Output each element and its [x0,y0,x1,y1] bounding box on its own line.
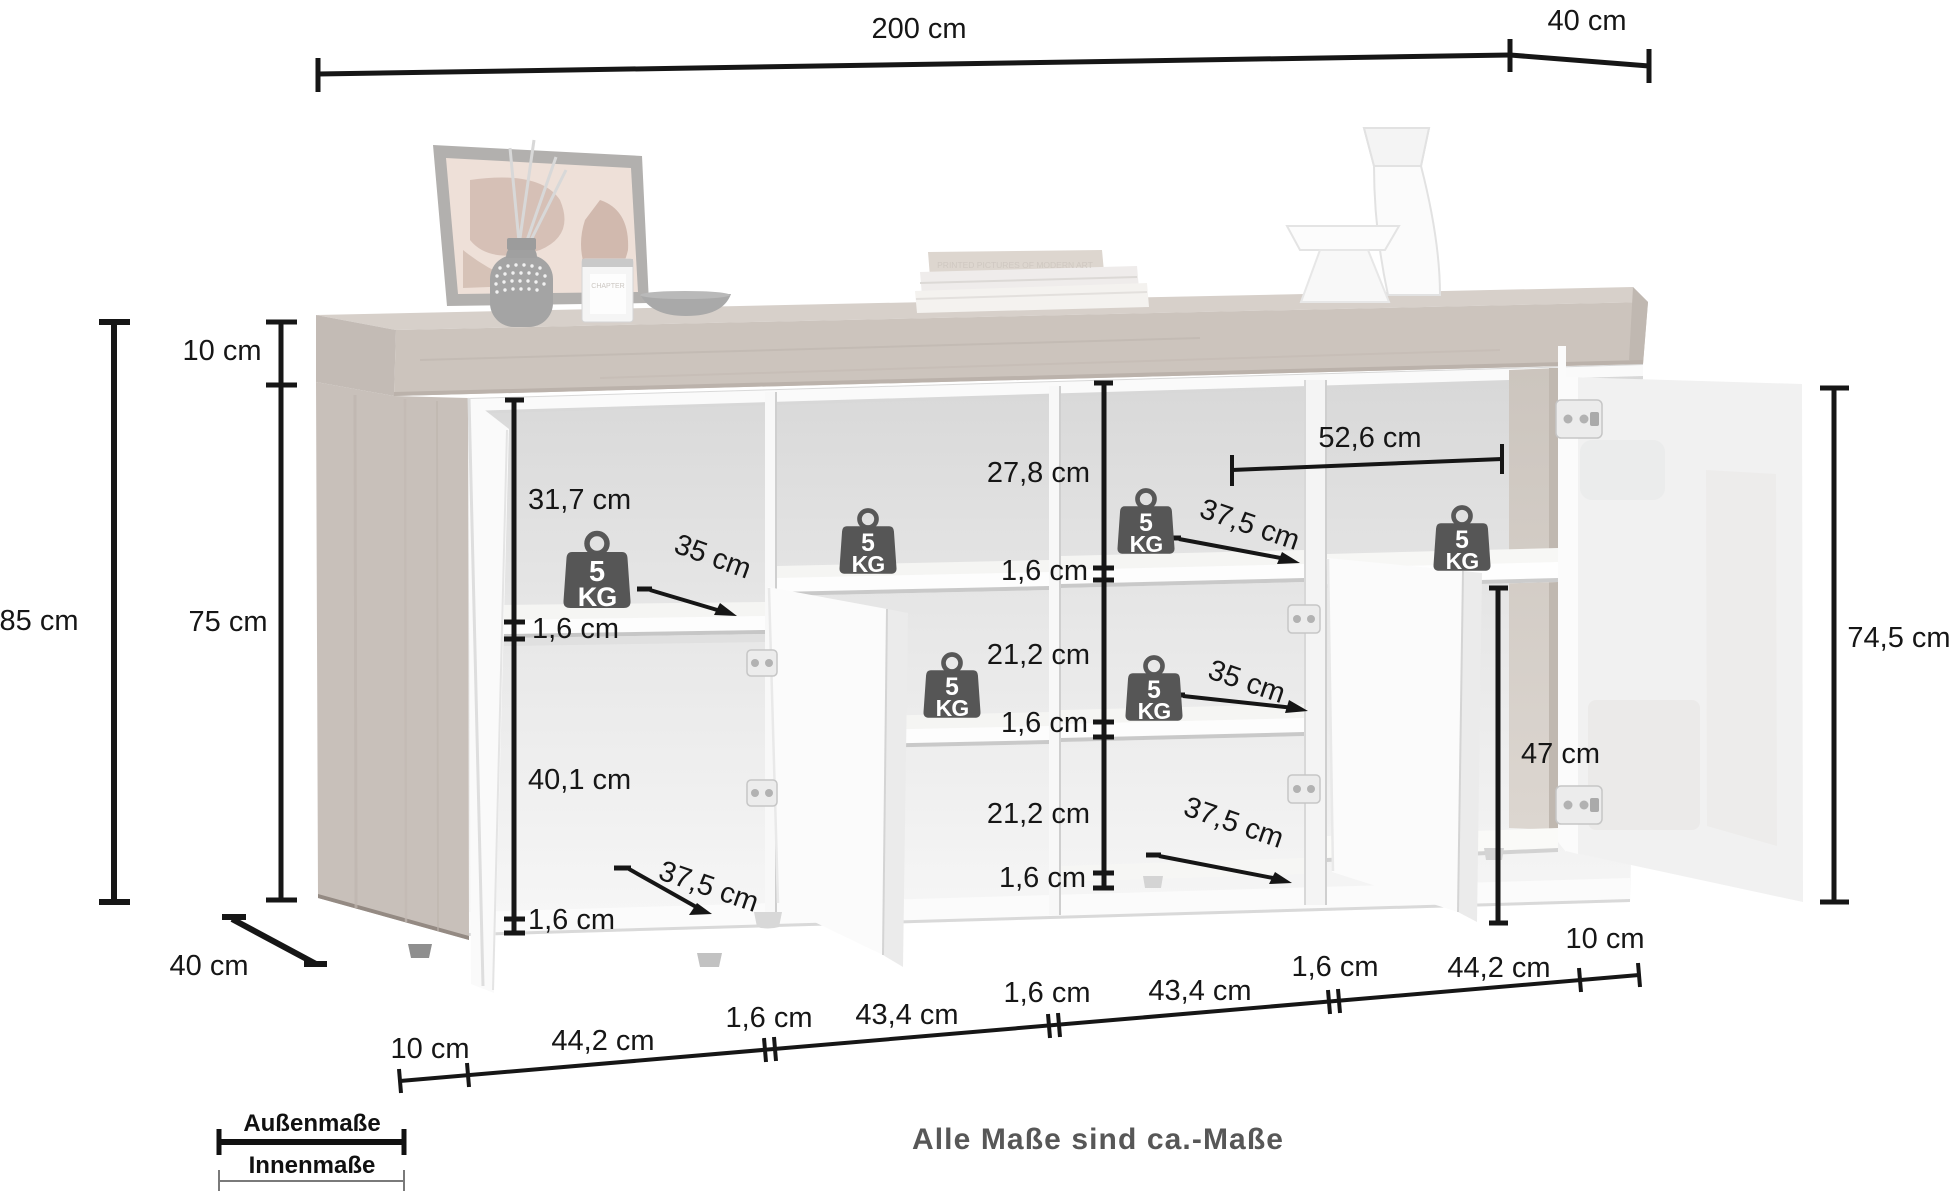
svg-text:Außenmaße: Außenmaße [243,1110,380,1137]
svg-text:Innenmaße: Innenmaße [249,1152,376,1179]
svg-text:PRINTED PICTURES OF MODERN ART: PRINTED PICTURES OF MODERN ART [937,260,1093,270]
svg-text:27,8 cm: 27,8 cm [987,457,1090,489]
svg-text:10 cm: 10 cm [1566,923,1645,955]
svg-text:85 cm: 85 cm [0,605,78,637]
svg-text:44,2 cm: 44,2 cm [1447,952,1550,984]
svg-text:1,6 cm: 1,6 cm [1001,555,1088,587]
svg-text:40,1 cm: 40,1 cm [528,764,631,796]
svg-text:47 cm: 47 cm [1521,738,1600,770]
svg-text:1,6 cm: 1,6 cm [999,862,1086,894]
svg-text:1,6 cm: 1,6 cm [1003,977,1090,1009]
svg-text:1,6 cm: 1,6 cm [1291,951,1378,983]
svg-text:10 cm: 10 cm [183,335,262,367]
svg-text:44,2 cm: 44,2 cm [551,1025,654,1057]
svg-text:31,7 cm: 31,7 cm [528,484,631,516]
svg-text:1,6 cm: 1,6 cm [528,904,615,936]
svg-text:1,6 cm: 1,6 cm [725,1002,812,1034]
svg-text:1,6 cm: 1,6 cm [532,613,619,645]
svg-text:21,2 cm: 21,2 cm [987,639,1090,671]
svg-text:10 cm: 10 cm [391,1033,470,1065]
svg-text:74,5 cm: 74,5 cm [1847,622,1950,654]
svg-text:21,2 cm: 21,2 cm [987,798,1090,830]
svg-text:75 cm: 75 cm [189,606,268,638]
svg-text:40 cm: 40 cm [170,950,249,982]
svg-text:CHAPTER: CHAPTER [591,283,624,290]
svg-text:40 cm: 40 cm [1548,5,1627,37]
svg-text:52,6 cm: 52,6 cm [1318,422,1421,454]
svg-text:200 cm: 200 cm [871,13,966,45]
svg-text:43,4 cm: 43,4 cm [1148,975,1251,1007]
svg-text:1,6 cm: 1,6 cm [1001,707,1088,739]
svg-text:43,4 cm: 43,4 cm [855,999,958,1031]
svg-text:Alle Maße sind ca.-Maße: Alle Maße sind ca.-Maße [912,1123,1284,1156]
